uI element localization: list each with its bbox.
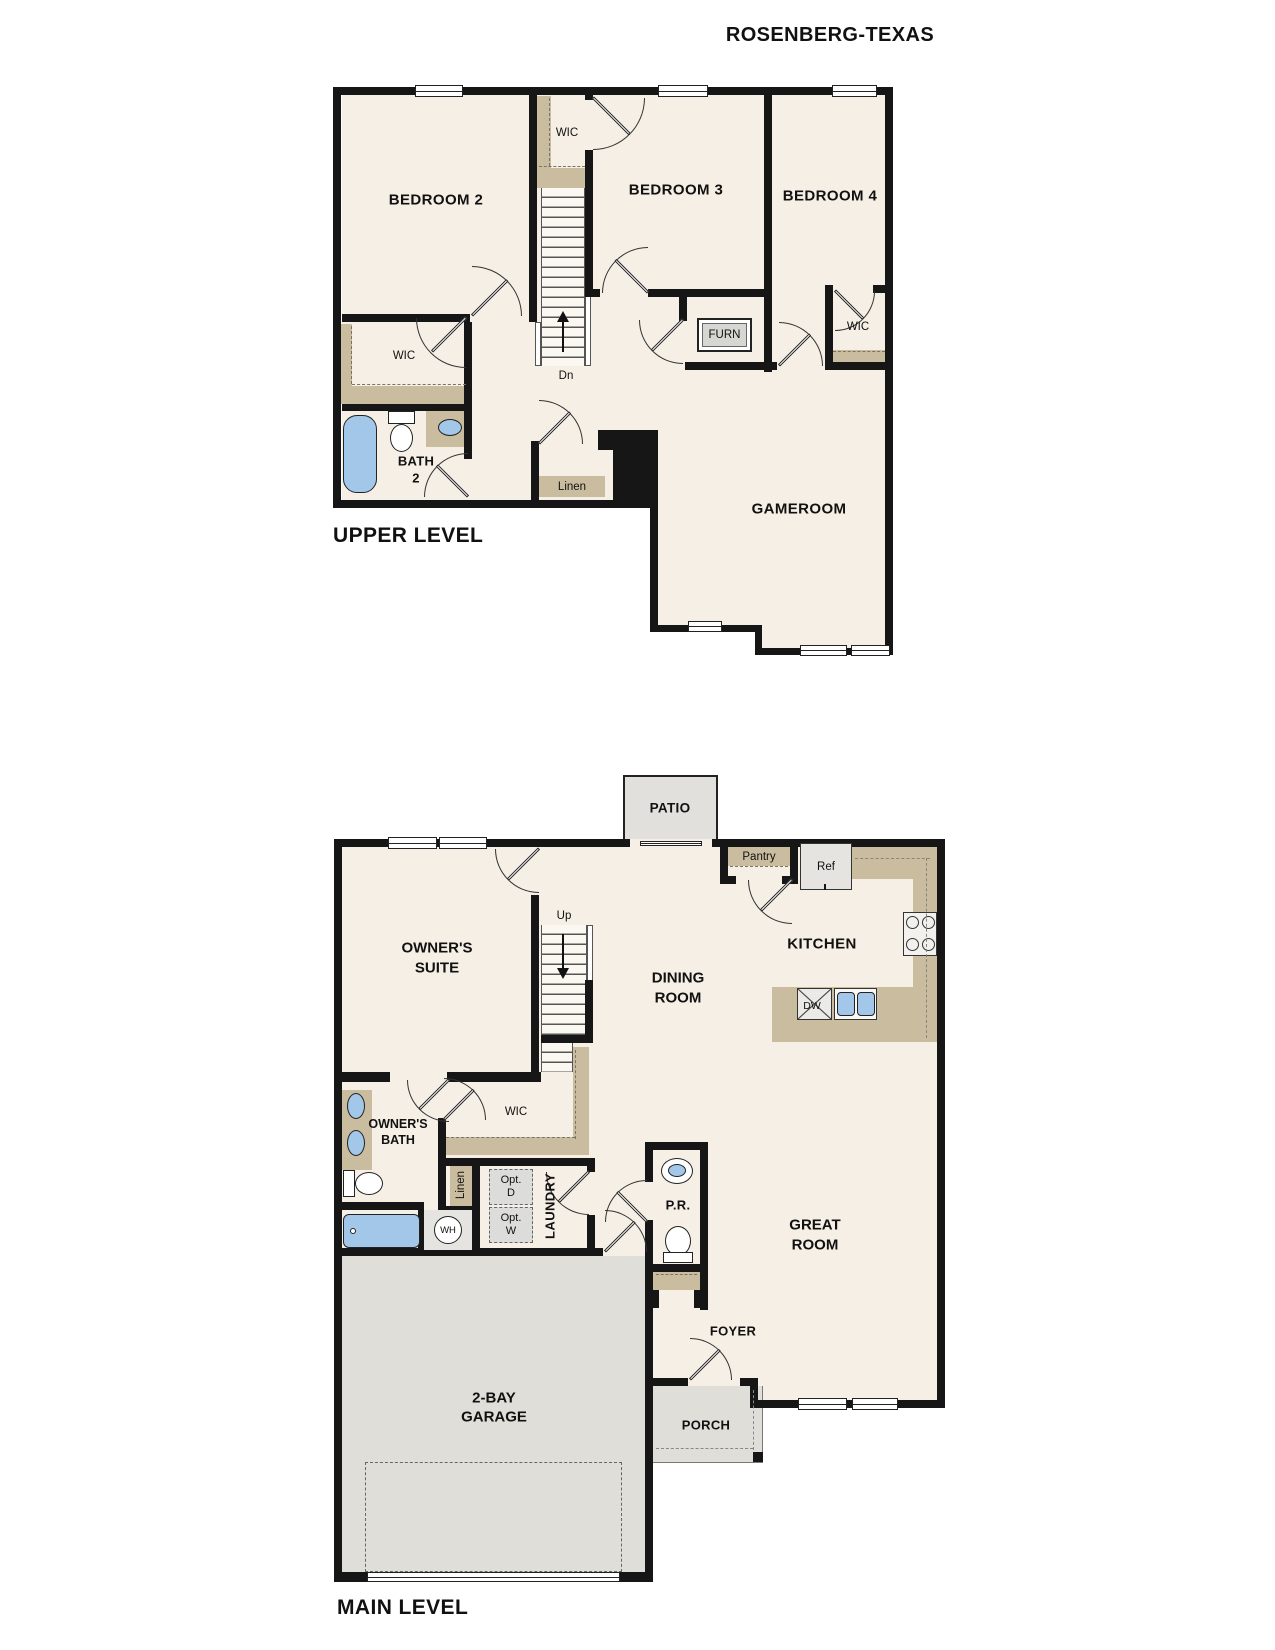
porch-dash [753,1390,754,1450]
pantry-dash [730,866,788,867]
counter-dash [855,858,930,859]
wall [645,1142,708,1150]
upper-level-caption: UPPER LEVEL [333,524,483,548]
wall [694,1290,700,1308]
powder-room-label: P.R. [666,1198,691,1213]
stairs-arrow-head [557,311,569,322]
wall [885,87,893,655]
window [415,85,463,97]
window [798,1398,847,1410]
owners-suite-label: SUITE [415,960,459,977]
opt-washer-label: W [506,1225,516,1238]
gameroom-label: GAMEROOM [752,501,847,518]
window [388,837,437,849]
window [658,85,708,97]
wall [650,448,658,632]
wall [333,87,341,508]
floorplan-page: ROSENBERG-TEXAS [0,0,1275,1650]
toilet-bowl [355,1172,383,1195]
linen-label: Linen [558,481,586,493]
wic-shelf [444,1137,589,1155]
bath2-label: BATH [398,454,434,469]
wic3-label: WIC [556,127,578,139]
wic-dash [446,1137,575,1138]
tub-drain [350,1228,356,1234]
wall [679,297,687,321]
window [851,645,890,656]
wall [585,980,593,1042]
wic-label: WIC [505,1106,527,1118]
bath2-label: 2 [412,471,420,486]
burner-icon [922,916,935,929]
wall [334,1572,367,1582]
stairs-arrow [562,934,564,970]
owners-suite-label: OWNER'S [401,940,472,957]
stair-rail [535,322,541,366]
opt-dryer-label: D [507,1187,515,1200]
wall [653,1290,659,1308]
shelf-dash [351,326,352,384]
wall [342,404,468,411]
great-room-label: GREAT [789,1217,840,1234]
wall [531,895,539,1082]
porch-label: PORCH [682,1418,730,1433]
wall [720,876,736,884]
sink-basin [837,992,855,1016]
patio-label: PATIO [650,801,691,816]
stair-rail [585,296,591,366]
wall [740,1378,757,1386]
dining-room-label: DINING [652,970,705,987]
opt-washer-box: Opt. W [489,1207,533,1243]
pantry-label: Pantry [742,851,775,863]
shelf-dash [352,384,466,385]
furnace-label: FURN [709,329,741,341]
water-heater-icon: WH [434,1216,462,1244]
wic2-label: WIC [393,350,415,362]
stairs-arrow-head [557,968,569,979]
stairs-dn-label: Dn [559,370,574,382]
sink [668,1164,686,1177]
wall [937,839,945,1408]
kitchen-label: KITCHEN [787,936,856,953]
wall [531,441,539,500]
stairs-up-label: Up [557,910,572,922]
patio-sliding-door [640,841,702,846]
great-room-label: ROOM [792,1237,839,1254]
window [800,645,847,656]
wall [334,1202,424,1210]
plan-title: ROSENBERG-TEXAS [715,24,945,47]
wall [645,1220,653,1582]
window [439,837,487,849]
toilet-bowl [390,424,413,452]
sink [438,419,462,436]
owners-bath-label: OWNER'S [368,1117,427,1131]
owners-bath-label: BATH [381,1133,415,1147]
shelf-dash [539,166,585,167]
porch-dash [656,1448,753,1449]
laundry-label: LAUNDRY [543,1173,558,1239]
opt-dryer-label: Opt. [501,1174,522,1187]
closet-dash [656,1274,697,1275]
wall [585,150,593,296]
wall [585,289,600,297]
main-stairs-lower [541,1043,573,1072]
garage-door-opening [367,1572,620,1582]
opt-dryer-box: Opt. D [489,1169,533,1205]
main-level-caption: MAIN LEVEL [337,1596,468,1620]
burner-icon [906,916,919,929]
gameroom-floor [657,362,885,628]
refrigerator-handle [824,884,826,890]
wall [333,500,657,508]
wall [764,94,772,372]
wall [541,1035,593,1043]
wic4-label: WIC [847,321,869,333]
wall [342,1072,390,1082]
wall [464,404,472,459]
garage-door-dashed [365,1462,622,1572]
wall [648,289,772,297]
linen-label: Linen [455,1171,467,1199]
sink [347,1093,365,1119]
toilet-tank [343,1170,355,1197]
sink-basin [857,992,875,1016]
wall [825,285,833,368]
bedroom2-label: BEDROOM 2 [389,192,483,209]
wall [472,1158,480,1250]
shelf-dash [833,351,885,352]
bathtub [343,415,377,493]
opt-washer-label: Opt. [501,1212,522,1225]
dining-room-label: ROOM [655,990,702,1007]
wall [529,94,537,322]
toilet-tank [663,1252,693,1263]
wall [598,430,658,450]
water-heater-label: WH [440,1225,456,1236]
shelf-dash [549,98,550,166]
foyer-label: FOYER [710,1324,756,1339]
wall [825,362,893,370]
wic3-shelf [537,168,585,188]
bedroom3-label: BEDROOM 3 [629,182,723,199]
wall [587,1215,595,1256]
main-stairs [541,925,587,1035]
dishwasher-label: DW [803,1000,821,1012]
window [852,1398,898,1410]
window [688,621,722,632]
wall [447,1072,541,1082]
counter-dash [926,858,927,1038]
bedroom4-label: BEDROOM 4 [783,188,877,205]
burner-icon [922,938,935,951]
wall [750,1400,945,1408]
garage-label: GARAGE [461,1409,527,1426]
porch-column [753,1452,763,1462]
wall [653,1264,700,1272]
window [832,85,877,97]
kitchen-counter [852,847,937,879]
wall [700,1142,708,1310]
furnace-unit: FURN [697,318,752,352]
burner-icon [906,938,919,951]
toilet-tank [388,411,415,424]
wall [685,362,777,370]
wic2-shelf [341,386,468,404]
wall [334,839,342,1582]
stair-rail [587,925,593,983]
wall [438,1158,595,1166]
fridge-label: Ref [817,861,835,873]
wic-dash [575,1050,576,1139]
sink [347,1130,365,1156]
stairs-arrow [562,320,564,352]
garage-label: 2-BAY [472,1390,516,1407]
